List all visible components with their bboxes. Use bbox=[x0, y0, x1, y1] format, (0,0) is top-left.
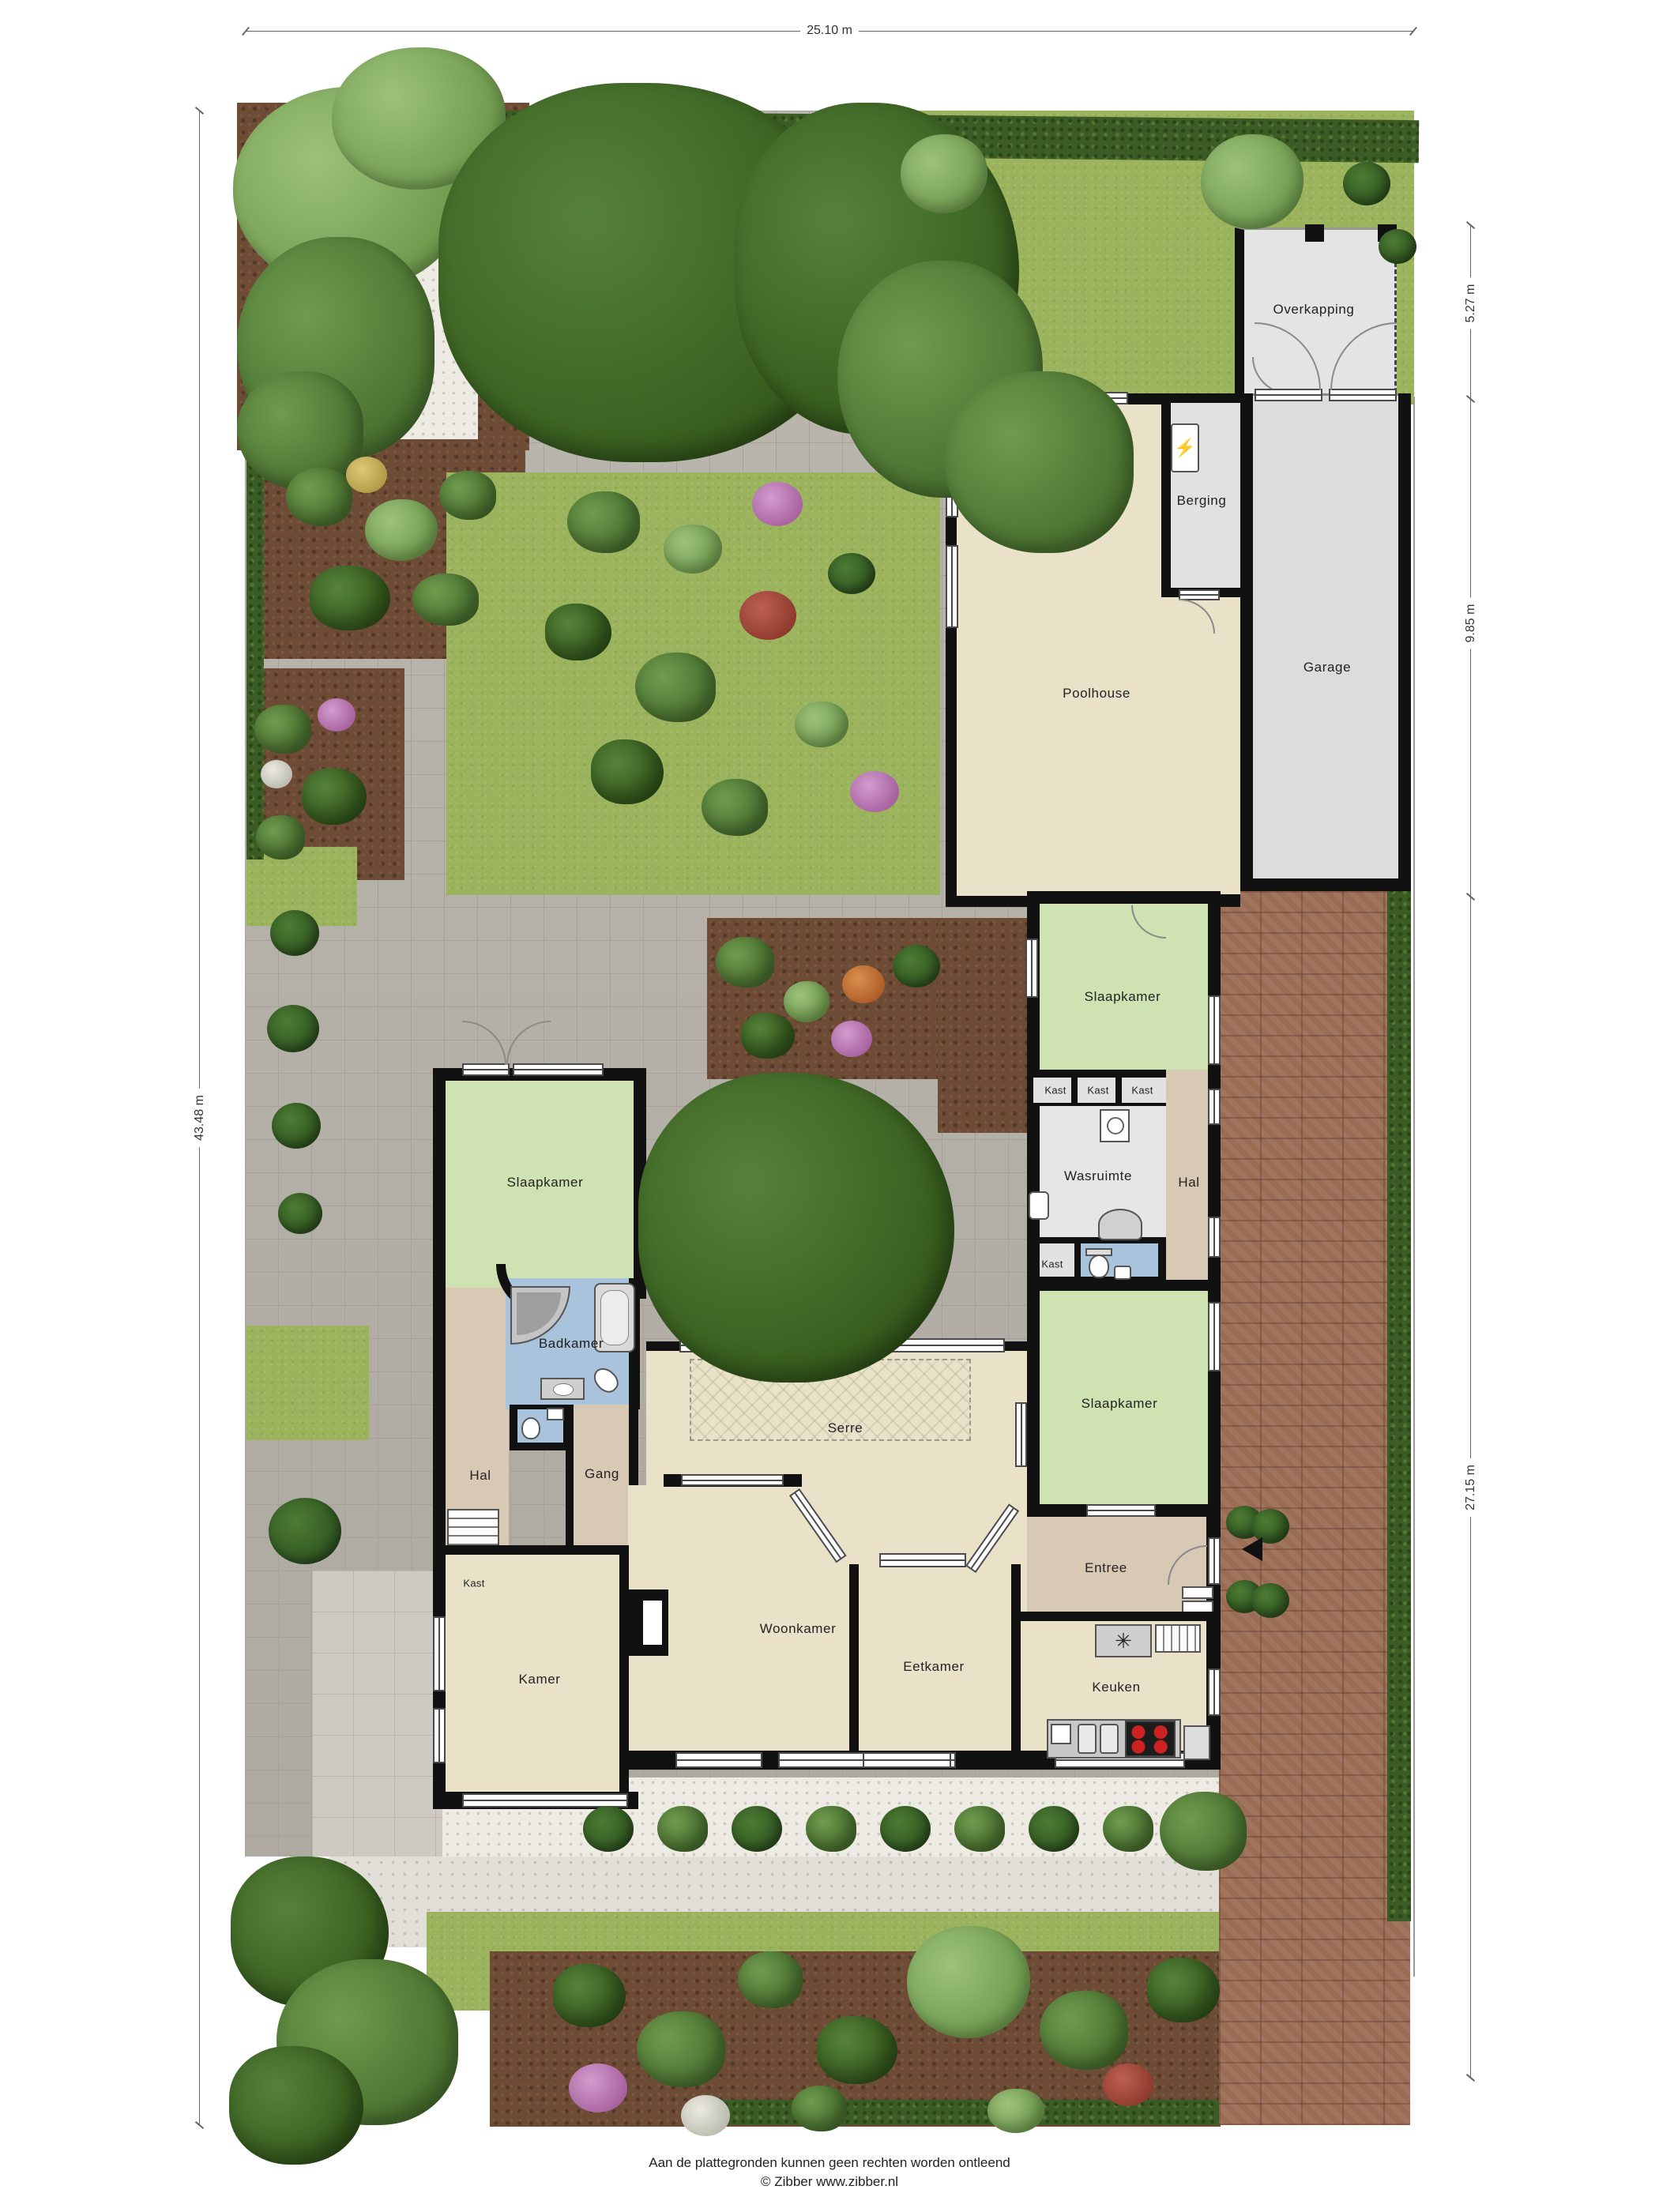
kitchen-faucet bbox=[1051, 1724, 1071, 1744]
dimension-top: 25.10 m bbox=[245, 24, 1414, 38]
entrance-arrow-icon bbox=[1242, 1537, 1262, 1561]
room-label-gang: Gang bbox=[585, 1466, 619, 1482]
shrub bbox=[272, 1103, 321, 1149]
slaapkamer1-window bbox=[1208, 995, 1221, 1065]
room-label-poolhouse: Poolhouse bbox=[1063, 686, 1130, 702]
small-sink bbox=[1114, 1266, 1131, 1280]
shrub bbox=[267, 1005, 319, 1052]
floor-plan-page: 25.10 m 43.48 m 5.27 m 9.85 m 27.15 m bbox=[0, 0, 1659, 2212]
slaapkamer1-window bbox=[1025, 939, 1038, 998]
boiler-dome bbox=[1098, 1209, 1142, 1240]
room-label-overkapping: Overkapping bbox=[1273, 302, 1355, 318]
shrub bbox=[278, 1193, 322, 1234]
dimension-right-top-label: 5.27 m bbox=[1462, 278, 1480, 329]
garden-plant bbox=[784, 981, 829, 1022]
garden-plant bbox=[637, 2011, 725, 2087]
house-left-wall bbox=[433, 1068, 446, 1809]
center-tree-canopy bbox=[638, 1073, 954, 1382]
garden-plant bbox=[817, 2016, 897, 2084]
bathroom-sink bbox=[540, 1378, 585, 1400]
room-label-kast: Kast bbox=[1087, 1085, 1108, 1097]
boiler-icon: ⚡ bbox=[1174, 438, 1195, 458]
garden-plant bbox=[591, 739, 664, 804]
garden-plant bbox=[702, 779, 768, 836]
shrub bbox=[1379, 229, 1416, 264]
garden-plant bbox=[842, 965, 885, 1003]
room-label-slaapkamer-1: Slaapkamer bbox=[1085, 989, 1161, 1005]
boiler: ⚡ bbox=[1171, 423, 1199, 472]
garden-plant bbox=[1103, 2063, 1153, 2106]
poolhouse-window bbox=[946, 545, 958, 628]
plot-boundary-line bbox=[1413, 397, 1415, 1977]
small-sink bbox=[547, 1408, 564, 1420]
room-label-berging: Berging bbox=[1177, 493, 1227, 509]
stove bbox=[1125, 1721, 1176, 1757]
overkapping-post bbox=[1305, 224, 1324, 242]
laundry-sink bbox=[1029, 1191, 1049, 1220]
dimension-right-bottom-label: 27.15 m bbox=[1462, 1458, 1480, 1517]
shrub bbox=[1160, 1792, 1247, 1871]
eetkamer-bottom-window bbox=[863, 1752, 951, 1768]
woonkamer-bottom-window bbox=[675, 1752, 762, 1768]
room-label-slaapkamer-2: Slaapkamer bbox=[1082, 1396, 1158, 1412]
closet-divider bbox=[1115, 1070, 1122, 1109]
shrub-row-item bbox=[1029, 1806, 1079, 1852]
room-poolhouse-ext bbox=[1161, 588, 1240, 907]
room-label-hal-left: Hal bbox=[469, 1468, 491, 1484]
kitchen-sink bbox=[1078, 1724, 1097, 1754]
dimension-line bbox=[859, 31, 1413, 32]
garden-plant bbox=[318, 698, 355, 732]
garden-plant bbox=[907, 1926, 1030, 2038]
room-label-woonkamer: Woonkamer bbox=[760, 1621, 837, 1637]
front-door-frame bbox=[1208, 1537, 1221, 1585]
garden-plant bbox=[1147, 1958, 1220, 2022]
fan-icon: ✳ bbox=[1115, 1629, 1132, 1653]
room-garage bbox=[1240, 393, 1411, 891]
bay-window bbox=[879, 1553, 966, 1567]
garden-plant bbox=[831, 1021, 872, 1057]
garden-plant bbox=[412, 574, 479, 626]
tree-canopy bbox=[944, 371, 1134, 553]
woonkamer-top-window bbox=[681, 1474, 784, 1486]
garden-plant bbox=[365, 499, 438, 561]
room-label-wasruimte: Wasruimte bbox=[1064, 1168, 1132, 1184]
dimension-right-top: 5.27 m bbox=[1465, 225, 1477, 399]
room-label-badkamer: Badkamer bbox=[539, 1336, 604, 1352]
shrub-row-item bbox=[657, 1806, 708, 1852]
garden-plant bbox=[893, 945, 940, 987]
slaapkamer2-window bbox=[1208, 1302, 1221, 1371]
garden-plant bbox=[310, 566, 390, 630]
room-label-kast: Kast bbox=[463, 1578, 484, 1589]
room-label-slaapkamer-3: Slaapkamer bbox=[507, 1175, 584, 1191]
garden-plant bbox=[261, 760, 292, 788]
meter-box bbox=[1182, 1586, 1213, 1599]
garden-plant bbox=[545, 604, 611, 660]
toilet-tank bbox=[1085, 1248, 1112, 1256]
garden-plant bbox=[681, 2095, 730, 2136]
kitchen-steps bbox=[1155, 1624, 1201, 1653]
grass-left-b bbox=[246, 1326, 369, 1440]
hal-right-window bbox=[1208, 1217, 1221, 1258]
dimension-right-bottom: 27.15 m bbox=[1465, 897, 1477, 2078]
hedge-driveway bbox=[1387, 886, 1411, 1921]
garden-plant bbox=[828, 553, 875, 594]
garden-plant bbox=[1040, 1991, 1128, 2070]
garden-plant bbox=[741, 1013, 795, 1059]
room-label-kast: Kast bbox=[1041, 1258, 1063, 1270]
garden-plant bbox=[738, 1951, 803, 2008]
garden-plant bbox=[567, 491, 640, 553]
footer-copyright: © Zibber www.zibber.nl bbox=[0, 2174, 1659, 2190]
room-label-serre: Serre bbox=[828, 1420, 863, 1436]
dimension-right-mid-label: 9.85 m bbox=[1462, 597, 1480, 649]
washing-machine bbox=[1100, 1109, 1130, 1142]
tree-canopy bbox=[229, 2046, 363, 2165]
serre-side-window bbox=[1015, 1402, 1027, 1467]
garden-plant bbox=[850, 771, 899, 812]
garden-plant bbox=[286, 468, 352, 526]
slaapkamer3-window bbox=[513, 1063, 604, 1076]
kitchen-sink bbox=[1100, 1724, 1119, 1754]
garden-plant bbox=[256, 815, 305, 860]
extractor-unit: ✳ bbox=[1095, 1624, 1152, 1657]
footer-disclaimer: Aan de plattegronden kunnen geen rechten… bbox=[0, 2155, 1659, 2171]
shrub-row-item bbox=[880, 1806, 931, 1852]
shrub bbox=[270, 910, 319, 956]
garden-plant bbox=[664, 525, 722, 574]
flower-bed-center-right bbox=[938, 918, 1029, 1133]
fireplace bbox=[623, 1589, 668, 1656]
shrub-row-item bbox=[806, 1806, 856, 1852]
garden-plant bbox=[254, 705, 311, 754]
garden-plant bbox=[553, 1964, 626, 2027]
room-label-garage: Garage bbox=[1303, 660, 1351, 675]
hal-right-window bbox=[1208, 1089, 1221, 1125]
garden-plant bbox=[302, 768, 367, 825]
shrub-row-item bbox=[1103, 1806, 1153, 1852]
shrub bbox=[269, 1498, 341, 1564]
dimension-left: 43.48 m bbox=[194, 111, 206, 2125]
garage-door-frame bbox=[1255, 389, 1322, 401]
room-label-keuken: Keuken bbox=[1092, 1680, 1140, 1695]
garden-plant bbox=[716, 937, 774, 987]
slaapkamer2-door-frame bbox=[1086, 1504, 1156, 1517]
room-label-hal-right: Hal bbox=[1178, 1175, 1199, 1191]
room-label-eetkamer: Eetkamer bbox=[903, 1659, 965, 1675]
dimension-top-label: 25.10 m bbox=[800, 22, 859, 39]
dimension-right-mid: 9.85 m bbox=[1465, 399, 1477, 897]
garden-plant bbox=[752, 482, 803, 526]
garden-plant bbox=[795, 702, 848, 747]
shrub bbox=[1201, 134, 1303, 229]
garden-plant bbox=[987, 2089, 1044, 2133]
hedge-bottom bbox=[695, 2100, 1221, 2125]
room-label-entree: Entree bbox=[1085, 1560, 1127, 1576]
garden-plant bbox=[739, 591, 796, 640]
garage-door-frame bbox=[1329, 389, 1397, 401]
garden-plant bbox=[439, 471, 496, 520]
side-path-paving bbox=[312, 1571, 442, 1856]
garden-plant bbox=[346, 457, 387, 493]
driveway-shrub bbox=[1251, 1583, 1289, 1618]
shrub-row-item bbox=[583, 1806, 634, 1852]
shrub bbox=[1343, 162, 1390, 205]
dimension-line bbox=[246, 31, 800, 32]
toilet bbox=[1089, 1255, 1109, 1278]
dishwasher bbox=[1183, 1725, 1210, 1760]
shrub bbox=[901, 134, 987, 213]
garden-plant bbox=[569, 2063, 627, 2112]
garden-plant bbox=[792, 2086, 847, 2131]
room-label-kast: Kast bbox=[1131, 1085, 1153, 1097]
kamer-left-window bbox=[433, 1616, 446, 1691]
room-label-kast: Kast bbox=[1044, 1085, 1066, 1097]
room-slaapkamer-1 bbox=[1027, 891, 1221, 1082]
garden-plant bbox=[635, 653, 716, 722]
keuken-right-window bbox=[1208, 1668, 1221, 1716]
kamer-bottom-window bbox=[462, 1793, 628, 1808]
toilet bbox=[521, 1417, 540, 1439]
shrub-row-item bbox=[954, 1806, 1005, 1852]
dimension-left-label: 43.48 m bbox=[191, 1089, 209, 1147]
slaapkamer3-door-frame bbox=[462, 1063, 510, 1076]
kamer-left-window bbox=[433, 1708, 446, 1763]
room-label-kamer: Kamer bbox=[518, 1672, 560, 1687]
shrub-row-item bbox=[732, 1806, 782, 1852]
closet-divider bbox=[1071, 1070, 1078, 1109]
